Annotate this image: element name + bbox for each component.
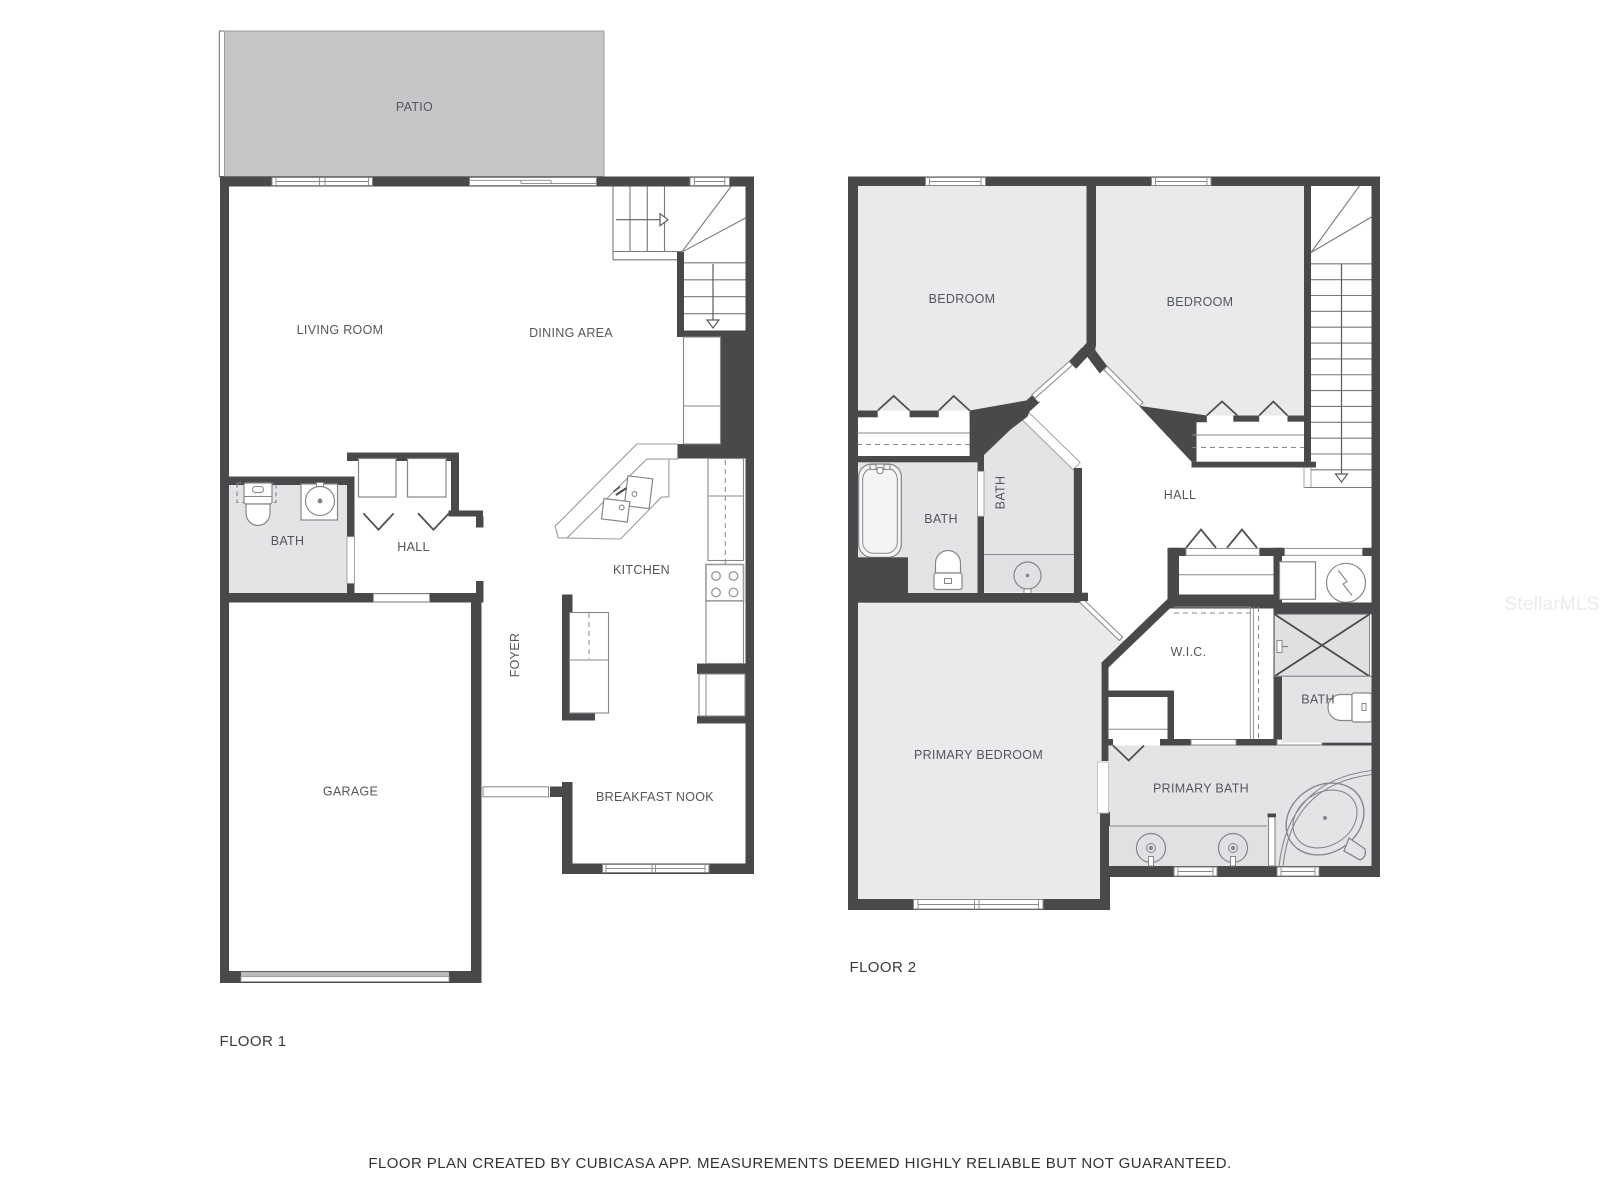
svg-text:PATIO: PATIO xyxy=(396,100,433,114)
svg-text:BATH: BATH xyxy=(924,512,958,526)
svg-text:HALL: HALL xyxy=(1164,488,1196,502)
svg-text:BATH: BATH xyxy=(1301,693,1335,707)
svg-text:StellarMLS: StellarMLS xyxy=(1505,594,1600,615)
svg-text:BREAKFAST NOOK: BREAKFAST NOOK xyxy=(596,790,714,804)
svg-text:FLOOR 2: FLOOR 2 xyxy=(850,959,917,976)
svg-text:BEDROOM: BEDROOM xyxy=(929,292,996,306)
svg-text:FOYER: FOYER xyxy=(508,633,522,678)
svg-text:BATH: BATH xyxy=(994,476,1008,510)
svg-text:LIVING ROOM: LIVING ROOM xyxy=(297,323,384,337)
svg-text:FLOOR 1: FLOOR 1 xyxy=(220,1033,287,1050)
svg-text:BEDROOM: BEDROOM xyxy=(1167,295,1234,309)
svg-text:PRIMARY BEDROOM: PRIMARY BEDROOM xyxy=(914,748,1043,762)
svg-text:W.I.C.: W.I.C. xyxy=(1171,645,1207,659)
svg-text:HALL: HALL xyxy=(397,540,429,554)
svg-text:PRIMARY BATH: PRIMARY BATH xyxy=(1153,782,1249,796)
svg-text:DINING AREA: DINING AREA xyxy=(529,326,613,340)
svg-text:FLOOR PLAN CREATED BY CUBICASA: FLOOR PLAN CREATED BY CUBICASA APP. MEAS… xyxy=(368,1155,1231,1172)
svg-text:BATH: BATH xyxy=(271,534,305,548)
svg-text:GARAGE: GARAGE xyxy=(323,785,378,799)
svg-text:KITCHEN: KITCHEN xyxy=(613,563,670,577)
